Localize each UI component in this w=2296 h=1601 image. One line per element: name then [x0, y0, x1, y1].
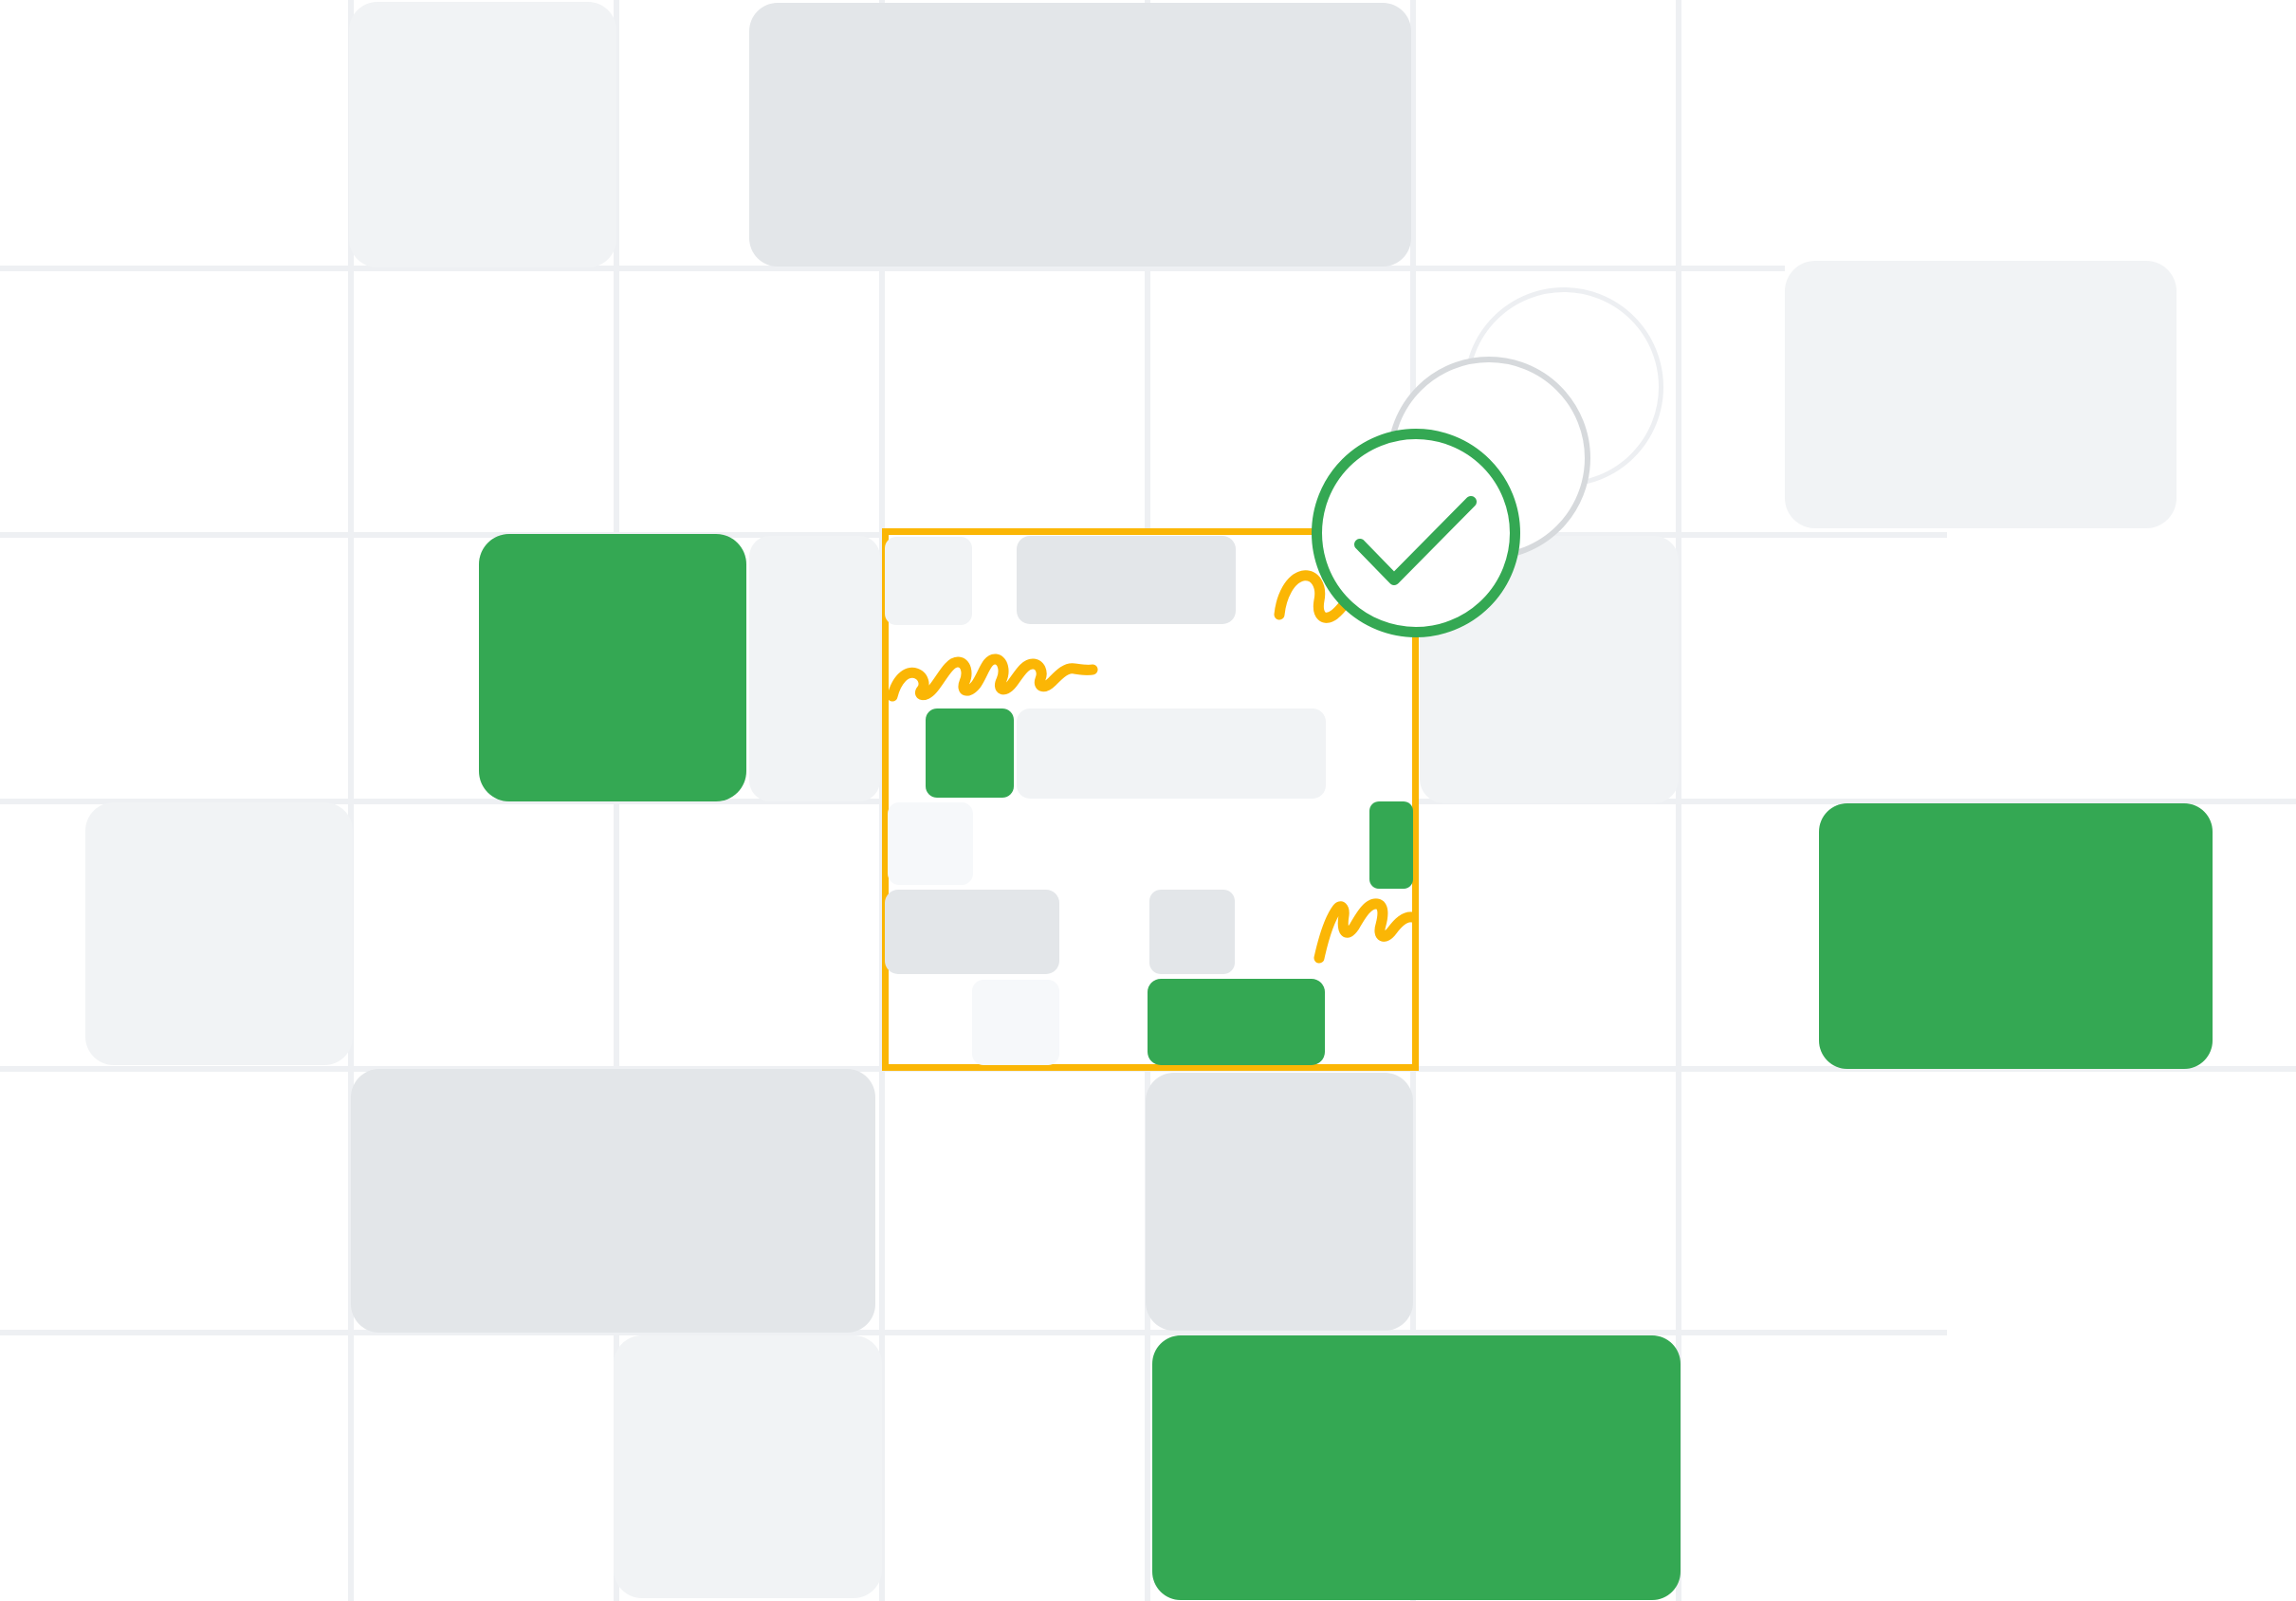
tile-top-center	[749, 3, 1411, 267]
tile-green-right	[1819, 803, 2213, 1069]
tile-top-right	[1785, 261, 2177, 528]
card-block-bottom-left	[885, 890, 1059, 974]
card-event-green-bar	[1148, 979, 1325, 1065]
tile-bottom-left-gray	[351, 1069, 875, 1333]
card-event-green-square	[926, 708, 1014, 798]
tile-green-square-left	[479, 534, 746, 801]
tile-top-left	[349, 2, 616, 267]
check-circle	[1312, 429, 1520, 637]
tile-left-mid	[85, 802, 353, 1065]
tile-gray-beside-green	[749, 536, 880, 801]
card-event-green-edge	[1369, 801, 1413, 889]
tile-bottom-center-gray	[1146, 1073, 1413, 1331]
card-chip-center	[1149, 890, 1235, 974]
card-bar-middle	[1017, 708, 1326, 799]
tile-green-bottom	[1152, 1335, 1681, 1600]
card-chip-top-left	[885, 537, 972, 625]
illustration-canvas	[0, 0, 2296, 1601]
card-chip-faint-left	[888, 802, 973, 885]
tile-bottom-left-light	[614, 1335, 882, 1598]
card-chip-faint-bottom	[972, 980, 1059, 1065]
card-bar-top	[1017, 536, 1236, 624]
